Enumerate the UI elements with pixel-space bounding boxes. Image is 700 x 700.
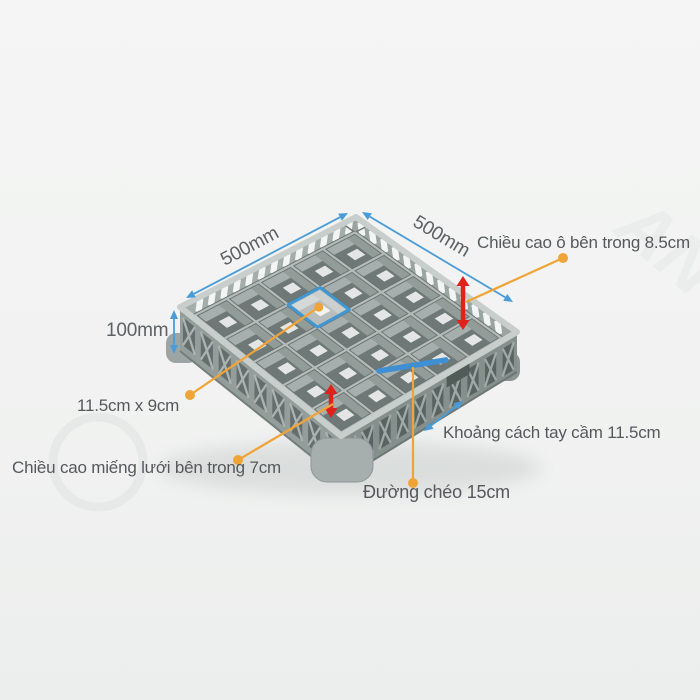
dimension-label-mesh-inner-height: Chiều cao miếng lưới bên trong 7cm [12,458,281,478]
dimension-label-handle-gap: Khoảng cách tay cầm 11.5cm [443,423,661,443]
dimension-label-cell-size: 11.5cm x 9cm [77,396,179,416]
rack-illustration: AN [0,0,700,700]
dimension-label-height: 100mm [106,320,168,342]
product-dimension-diagram: AN 500mm 500mm 100mm Chiều cao ô bên tro… [0,0,700,700]
dimension-label-cell-inner-height: Chiều cao ô bên trong 8.5cm [477,233,690,253]
dimension-label-diagonal: Đường chéo 15cm [363,482,510,503]
